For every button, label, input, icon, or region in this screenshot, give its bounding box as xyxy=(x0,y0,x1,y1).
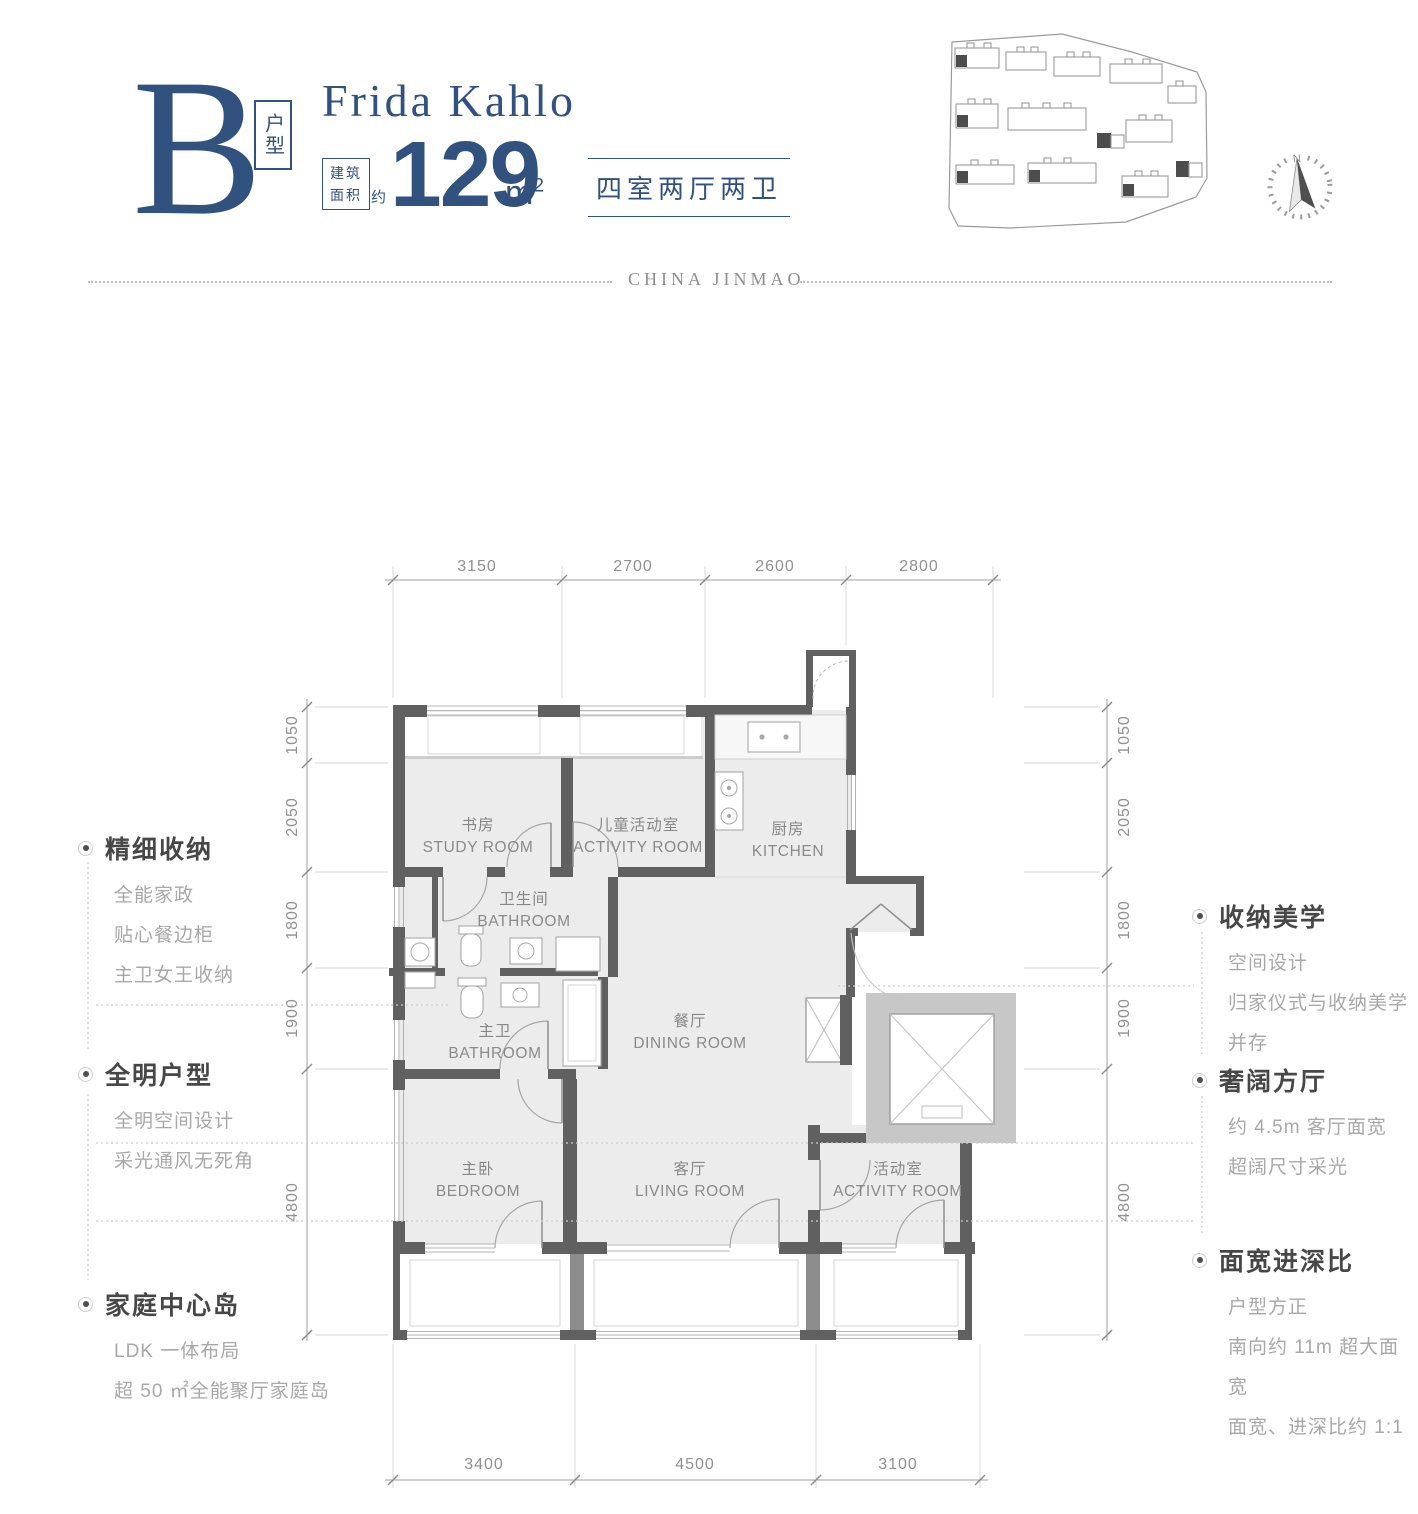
svg-text:活动室: 活动室 xyxy=(873,1160,923,1178)
svg-text:主卧: 主卧 xyxy=(461,1160,494,1178)
site-plan xyxy=(949,34,1207,228)
dim-top-1: 2700 xyxy=(613,558,653,575)
dim-right-3: 1900 xyxy=(1116,998,1133,1038)
dim-right-4: 4800 xyxy=(1116,1182,1133,1222)
svg-text:BATHROOM: BATHROOM xyxy=(448,1045,541,1062)
bath-sink xyxy=(510,938,542,964)
dim-left-0: 1050 xyxy=(284,715,301,755)
svg-text:LIVING ROOM: LIVING ROOM xyxy=(635,1183,745,1200)
svg-text:客厅: 客厅 xyxy=(673,1160,706,1178)
dim-bottom-0: 3400 xyxy=(464,1456,504,1473)
dim-left-3: 1900 xyxy=(284,998,301,1038)
svg-text:BATHROOM: BATHROOM xyxy=(477,913,570,930)
svg-text:卫生间: 卫生间 xyxy=(499,890,549,908)
washer xyxy=(405,938,435,966)
compass-icon: N xyxy=(1266,147,1333,220)
site-buildings xyxy=(955,43,1202,197)
svg-text:ACTIVITY ROOM: ACTIVITY ROOM xyxy=(833,1183,963,1200)
dim-left-4: 4800 xyxy=(284,1182,301,1222)
dim-right-1: 2050 xyxy=(1116,797,1133,837)
dim-left-2: 1800 xyxy=(284,900,301,940)
compass-north-label: N xyxy=(1292,153,1301,166)
svg-text:厨房: 厨房 xyxy=(771,820,804,838)
dim-right-2: 1800 xyxy=(1116,900,1133,940)
svg-text:儿童活动室: 儿童活动室 xyxy=(597,815,680,834)
svg-text:STUDY ROOM: STUDY ROOM xyxy=(423,839,534,856)
dim-top-2: 2600 xyxy=(755,558,795,575)
toilet-bowl xyxy=(461,934,481,966)
dim-right-0: 1050 xyxy=(1116,715,1133,755)
dim-bottom-1: 4500 xyxy=(675,1456,715,1473)
svg-text:BEDROOM: BEDROOM xyxy=(436,1183,520,1200)
dim-bottom-2: 3100 xyxy=(878,1456,918,1473)
svg-text:DINING ROOM: DINING ROOM xyxy=(633,1035,746,1052)
stove xyxy=(715,772,743,830)
bathtub xyxy=(563,980,601,1066)
balconies xyxy=(410,1260,958,1326)
dim-top-3: 2800 xyxy=(899,558,939,575)
svg-text:餐厅: 餐厅 xyxy=(673,1012,706,1030)
floor-plan-page: B 户型 Frida Kahlo 建筑 面积 约 129 m2 四室两厅两卫 C… xyxy=(0,0,1418,1514)
floor-plan-graphic: N xyxy=(0,0,1418,1514)
kitchen-sink xyxy=(748,722,800,752)
shower xyxy=(556,937,600,971)
dim-top-0: 3150 xyxy=(457,558,497,575)
master-toilet xyxy=(461,986,483,1018)
laundry-counter xyxy=(405,972,435,988)
dim-left-1: 2050 xyxy=(284,797,301,837)
svg-text:书房: 书房 xyxy=(461,816,494,834)
master-sink xyxy=(501,983,539,1007)
svg-text:ACTIVITY ROOM: ACTIVITY ROOM xyxy=(573,839,703,856)
svg-text:KITCHEN: KITCHEN xyxy=(752,843,824,860)
svg-text:主卫: 主卫 xyxy=(478,1022,511,1040)
master-toilet-tank xyxy=(458,978,486,986)
